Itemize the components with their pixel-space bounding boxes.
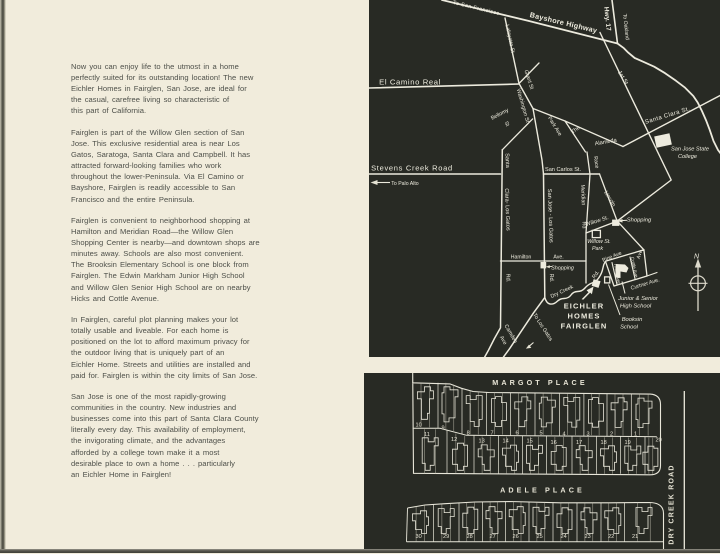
- svg-text:21: 21: [632, 534, 638, 540]
- svg-text:To Oakland: To Oakland: [621, 14, 630, 41]
- svg-text:El Camino Real: El Camino Real: [379, 77, 441, 86]
- svg-text:EICHLER: EICHLER: [564, 302, 605, 311]
- svg-text:Pine Ave: Pine Ave: [602, 250, 623, 263]
- svg-text:The: The: [570, 125, 581, 136]
- svg-text:28: 28: [467, 534, 473, 540]
- svg-text:18: 18: [601, 440, 607, 446]
- svg-text:3: 3: [587, 432, 590, 438]
- svg-text:Willow St.: Willow St.: [587, 239, 611, 245]
- svg-text:San Carlos St.: San Carlos St.: [545, 167, 582, 173]
- svg-text:19: 19: [625, 440, 631, 446]
- svg-text:24: 24: [561, 534, 567, 540]
- svg-text:29: 29: [443, 534, 449, 540]
- svg-text:Race: Race: [592, 156, 600, 169]
- svg-text:Meridian: Meridian: [579, 185, 586, 206]
- svg-text:25: 25: [537, 534, 543, 540]
- svg-text:To Palo Alto: To Palo Alto: [391, 181, 419, 187]
- svg-text:San Jose State: San Jose State: [671, 147, 709, 153]
- svg-text:School: School: [620, 325, 638, 331]
- svg-text:Ave.: Ave.: [553, 254, 563, 260]
- svg-text:Park: Park: [592, 246, 603, 252]
- svg-text:Shopping: Shopping: [627, 218, 652, 224]
- svg-text:MARGOT PLACE: MARGOT PLACE: [492, 378, 588, 387]
- svg-text:7: 7: [491, 431, 494, 437]
- svg-text:30: 30: [416, 534, 422, 540]
- svg-text:22: 22: [608, 534, 614, 540]
- svg-text:27: 27: [490, 534, 496, 540]
- svg-text:Cottle Ave: Cottle Ave: [630, 256, 639, 278]
- svg-text:DRY CREEK ROAD: DRY CREEK ROAD: [669, 464, 676, 544]
- svg-text:Hwy. 17: Hwy. 17: [602, 7, 612, 32]
- svg-text:Stevens Creek Road: Stevens Creek Road: [371, 164, 453, 173]
- svg-text:Alameda: Alameda: [594, 137, 618, 147]
- svg-text:Bayshore Highway: Bayshore Highway: [529, 10, 598, 35]
- svg-text:10: 10: [416, 423, 422, 429]
- svg-text:26: 26: [513, 534, 519, 540]
- svg-text:Dry Creek: Dry Creek: [550, 284, 575, 300]
- svg-text:1: 1: [634, 432, 637, 438]
- svg-text:FAIRGLEN: FAIRGLEN: [561, 322, 608, 331]
- svg-text:Rd.: Rd.: [504, 274, 510, 283]
- svg-text:To Los Gatos: To Los Gatos: [531, 313, 553, 343]
- svg-text:To San Francisco: To San Francisco: [452, 0, 500, 17]
- svg-text:N: N: [694, 254, 700, 261]
- svg-text:Shopping: Shopping: [551, 266, 574, 272]
- svg-text:5: 5: [540, 431, 543, 437]
- svg-text:St: St: [503, 121, 511, 128]
- svg-text:Junior & Senior: Junior & Senior: [617, 296, 659, 302]
- svg-text:6: 6: [516, 431, 519, 437]
- svg-text:Grant St: Grant St: [522, 69, 534, 90]
- svg-text:Ave: Ave: [636, 249, 644, 259]
- svg-text:23: 23: [585, 534, 591, 540]
- svg-text:1st St: 1st St: [616, 70, 629, 86]
- svg-text:Rd.: Rd.: [591, 270, 601, 280]
- svg-text:15: 15: [527, 439, 533, 445]
- svg-text:College: College: [678, 154, 697, 160]
- svg-text:20: 20: [656, 438, 662, 444]
- svg-text:12: 12: [451, 437, 457, 443]
- svg-text:2: 2: [610, 432, 613, 438]
- svg-text:Rd.: Rd.: [548, 274, 554, 283]
- svg-text:High School: High School: [620, 304, 652, 310]
- svg-text:HOMES: HOMES: [567, 312, 600, 321]
- svg-text:ADELE PLACE: ADELE PLACE: [500, 486, 585, 495]
- svg-text:Washington St: Washington St: [515, 88, 531, 124]
- svg-text:Lincoln: Lincoln: [602, 190, 616, 208]
- svg-text:16: 16: [551, 440, 557, 446]
- svg-text:13: 13: [479, 439, 485, 445]
- svg-text:17: 17: [576, 440, 582, 446]
- svg-text:Ave: Ave: [498, 335, 508, 346]
- svg-text:9: 9: [442, 426, 445, 432]
- svg-text:San Jose - Los Gatos: San Jose - Los Gatos: [546, 189, 554, 243]
- svg-text:14: 14: [503, 439, 509, 445]
- svg-text:11: 11: [424, 432, 430, 438]
- svg-text:Booksin: Booksin: [622, 317, 643, 323]
- svg-text:Hamilton: Hamilton: [511, 254, 532, 260]
- svg-text:Bellomy: Bellomy: [490, 107, 510, 121]
- svg-text:4: 4: [563, 431, 566, 437]
- svg-text:Lafayette St: Lafayette St: [504, 24, 516, 54]
- svg-text:Clara- Los Gatos: Clara- Los Gatos: [503, 188, 510, 231]
- svg-text:8: 8: [467, 431, 470, 437]
- svg-text:Santa: Santa: [504, 153, 511, 169]
